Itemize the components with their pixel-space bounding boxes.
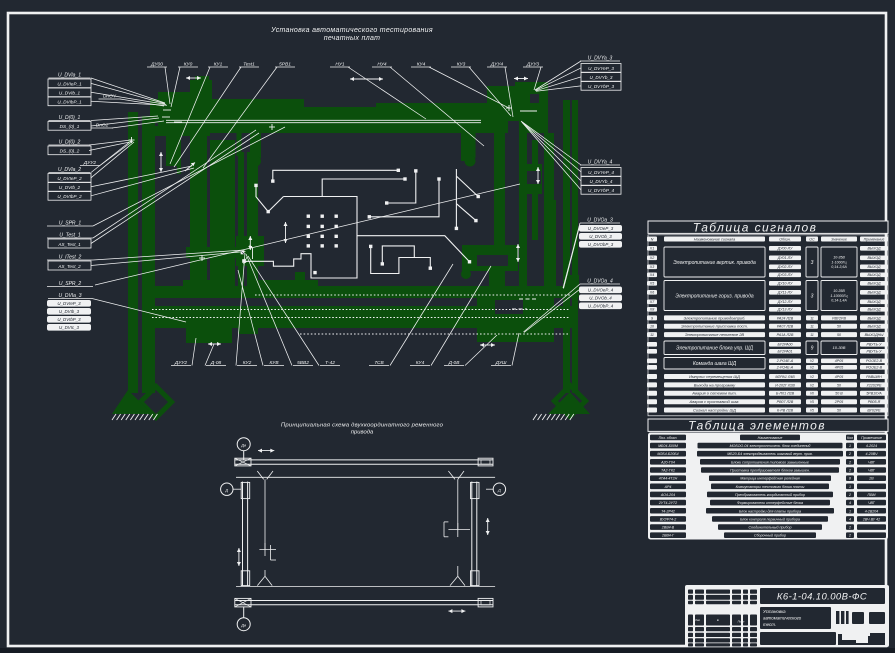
svg-text:РВУТЬ-У: РВУТЬ-У — [867, 343, 883, 347]
svg-text:50: 50 — [837, 333, 841, 337]
svg-text:РВУТЬ-У: РВУТЬ-У — [867, 350, 883, 354]
svg-text:ВЫХОД: ВЫХОД — [867, 308, 881, 312]
svg-text:Коммутаторы тестового блока пл: Коммутаторы тестового блока платы — [736, 485, 805, 489]
svg-text:11: 11 — [810, 325, 814, 329]
svg-text:N: N — [651, 237, 654, 241]
svg-text:1: 1 — [849, 485, 851, 489]
svg-text:Авария с приставкой шаг.: Авария с приставкой шаг. — [688, 399, 739, 404]
svg-text:МБ04-Б00М: МБ04-Б00М — [658, 444, 678, 448]
svg-text:Электропитание приставки пост.: Электропитание приставки пост. — [681, 324, 748, 329]
svg-text:V2: V2 — [810, 375, 814, 379]
svg-text:U_DVObP_4: U_DVObP_4 — [588, 304, 614, 309]
svg-text:DS_(0)_1: DS_(0)_1 — [60, 124, 80, 129]
svg-text:И-202Г Л2В: И-202Г Л2В — [775, 383, 795, 387]
svg-text:U_DVYeP_3: U_DVYeP_3 — [588, 66, 614, 71]
svg-text:ВЫХОД: ВЫХОД — [867, 325, 881, 329]
svg-text:2ВВ4-В: 2ВВ4-В — [661, 526, 675, 530]
svg-text:Таблица сигналов: Таблица сигналов — [693, 221, 818, 235]
svg-text:1: 1 — [849, 444, 851, 448]
svg-text:2: 2 — [848, 469, 851, 473]
svg-text:Преобразователь координатный п: Преобразователь координатный прибор — [735, 493, 805, 497]
svg-text:U_DVIb_1: U_DVIb_1 — [59, 91, 81, 96]
svg-text:Блоки сопротивления типового з: Блоки сопротивления типового завышенные — [731, 460, 809, 464]
svg-text:0,14-1,4А: 0,14-1,4А — [831, 299, 847, 303]
svg-text:U_DVIeP_2: U_DVIeP_2 — [57, 176, 82, 181]
svg-text:U_DVIeP_1: U_DVIeP_1 — [57, 82, 82, 87]
svg-text:1-1000Гц: 1-1000Гц — [831, 260, 846, 264]
svg-text:РА07 Л2В: РА07 Л2В — [777, 325, 794, 329]
svg-text:ДУ03-ЛУ: ДУ03-ЛУ — [777, 273, 793, 277]
svg-text:U_DVIb_2: U_DVIb_2 — [59, 185, 81, 190]
svg-text:▸: ▸ — [717, 618, 719, 622]
svg-text:Х6: Х6 — [649, 291, 654, 295]
svg-text:U_DVYb_4: U_DVYb_4 — [590, 179, 613, 184]
svg-text:9: 9 — [651, 316, 653, 320]
svg-text:Электропитание петлевое 2В: Электропитание петлевое 2В — [685, 332, 745, 337]
svg-text:Наименование сигнала: Наименование сигнала — [694, 237, 736, 241]
svg-text:ДУ12-ЛУ: ДУ12-ЛУ — [777, 300, 793, 304]
svg-text:11: 11 — [810, 333, 814, 337]
svg-text:Электропитание блока упр. ШД: Электропитание блока упр. ШД — [676, 346, 754, 352]
svg-text:Дв: Дв — [240, 442, 246, 447]
svg-text:печатных плат: печатных плат — [324, 35, 381, 42]
svg-text:ВЫХОДНЫ: ВЫХОДНЫ — [865, 333, 885, 337]
svg-text:Т4-2Р42: Т4-2Р42 — [661, 509, 675, 513]
svg-text:U_DVIbP_2: U_DVIbP_2 — [57, 194, 82, 199]
svg-text:Дв: Дв — [240, 622, 246, 627]
svg-text:ВЫХОД: ВЫХОД — [867, 316, 881, 320]
svg-text:ДУ00-ЛУ: ДУ00-ЛУ — [777, 247, 793, 251]
svg-text:2: 2 — [848, 534, 851, 538]
svg-text:ЧВТ: ЧВТ — [868, 501, 876, 505]
svg-text:М2РА1 Л4В: М2РА1 Л4В — [775, 375, 795, 379]
svg-text:50: 50 — [837, 408, 841, 412]
svg-text:РВ05-Я: РВ05-Я — [868, 400, 881, 404]
svg-text:Д: Д — [497, 487, 501, 492]
svg-text:2-РО4Е-А: 2-РО4Е-А — [776, 366, 794, 370]
svg-text:U_DVYb_3: U_DVYb_3 — [590, 75, 613, 80]
svg-text:U_DVObP_3: U_DVObP_3 — [588, 242, 614, 247]
svg-text:Х2: Х2 — [649, 256, 654, 260]
svg-text:U_DVIc_3: U_DVIc_3 — [59, 325, 80, 330]
svg-text:9: 9 — [811, 346, 814, 352]
svg-text:50: 50 — [837, 325, 841, 329]
svg-text:4-20ВЧ: 4-20ВЧ — [866, 452, 878, 456]
svg-text:U_DVYbP_3: U_DVYbP_3 — [588, 84, 614, 89]
svg-text:AS_Test_1: AS_Test_1 — [57, 242, 81, 247]
svg-text:Установка: Установка — [763, 609, 786, 614]
svg-text:Изм: Изм — [694, 618, 700, 622]
svg-text:автоматического: автоматического — [763, 616, 802, 621]
svg-text:V0: V0 — [810, 392, 814, 396]
svg-text:4: 4 — [849, 517, 851, 521]
svg-text:Х5: Х5 — [649, 282, 654, 286]
svg-text:Выхода на программу: Выхода на программу — [694, 382, 736, 387]
svg-text:Поз. обозн.: Поз. обозн. — [659, 436, 678, 440]
svg-text:Д: Д — [224, 487, 228, 492]
svg-text:Сигнал настройки ШД: Сигнал настройки ШД — [693, 407, 736, 412]
svg-text:МОБОО-04 электрооптическ. блок: МОБОО-04 электрооптическ. блок соединени… — [730, 444, 811, 448]
svg-text:У2202РЕ: У2202РЕ — [866, 383, 882, 387]
svg-text:Соединительный прибор: Соединительный прибор — [749, 526, 792, 530]
svg-text:ДУ11-ЛУ: ДУ11-ЛУ — [777, 291, 793, 295]
svg-text:Б-П01 Л2В: Б-П01 Л2В — [776, 392, 795, 396]
svg-text:ВЫХОД: ВЫХОД — [867, 300, 881, 304]
svg-text:Х3: Х3 — [649, 265, 654, 269]
svg-text:4Р05: 4Р05 — [835, 359, 843, 363]
svg-text:Примечание: Примечание — [864, 237, 885, 241]
svg-text:ВЫХОД: ВЫХОД — [867, 247, 881, 251]
svg-text:А20-Т04: А20-Т04 — [660, 460, 675, 464]
svg-text:Электропитание вертик. приво: Электропитание вертик. привода — [673, 260, 756, 266]
svg-text:Электропитание приводовприб.: Электропитание приводовприб. — [683, 315, 745, 320]
svg-text:4-2В204: 4-2В204 — [865, 509, 879, 513]
svg-text:АР4: АР4 — [664, 485, 672, 489]
svg-text:Приставка преобразователя блок: Приставка преобразователя блоков завышен… — [730, 469, 810, 473]
svg-text:БУ2РА00: БУ2РА00 — [778, 343, 793, 347]
svg-text:Х4: Х4 — [649, 273, 654, 277]
svg-text:U_DVOb_4: U_DVOb_4 — [589, 296, 612, 301]
svg-text:10: 10 — [650, 325, 654, 329]
svg-text:V5: V5 — [810, 408, 814, 412]
svg-text:ВЫХОД: ВЫХОД — [867, 282, 881, 286]
svg-text:2УТ4-2УТ2: 2УТ4-2УТ2 — [658, 501, 677, 505]
svg-text:К-РВ Л2В: К-РВ Л2В — [777, 408, 794, 412]
svg-text:U_DVOeP_3: U_DVOeP_3 — [588, 226, 614, 231]
svg-text:U_DVYbP_4: U_DVYbP_4 — [588, 188, 614, 193]
svg-text:V5: V5 — [810, 400, 814, 404]
svg-text:РА1А Л2В: РА1А Л2В — [777, 333, 794, 337]
svg-text:V2: V2 — [810, 383, 814, 387]
svg-text:10-35В: 10-35В — [833, 289, 845, 293]
svg-text:3: 3 — [811, 293, 814, 299]
svg-text:2ВВ4-Г: 2ВВ4-Г — [661, 534, 675, 538]
svg-text:8: 8 — [849, 477, 851, 481]
svg-text:3: 3 — [811, 260, 814, 266]
svg-text:Импульс перемещения ШД: Импульс перемещения ШД — [689, 374, 740, 379]
svg-text:1-10000Гц: 1-10000Гц — [830, 294, 847, 298]
svg-text:Таблица элементов: Таблица элементов — [688, 419, 826, 433]
svg-text:U_DVIeP_3: U_DVIeP_3 — [57, 301, 81, 306]
svg-text:10-35В: 10-35В — [833, 255, 845, 259]
svg-text:ВУ02РЕ: ВУ02РЕ — [867, 408, 881, 412]
svg-text:Блок контроля первичный прибор: Блок контроля первичный прибора — [740, 517, 800, 521]
svg-text:ОС: ОС — [809, 237, 815, 241]
svg-text:10-30В: 10-30В — [833, 345, 846, 350]
svg-text:2Р05: 2Р05 — [834, 400, 843, 404]
svg-text:V2: V2 — [810, 359, 814, 363]
svg-text:ЧВТ: ЧВТ — [868, 469, 876, 473]
svg-text:4Р05: 4Р05 — [835, 366, 843, 370]
svg-text:РООЕ2-В: РООЕ2-В — [866, 366, 883, 370]
svg-text:2-РО4Е-А: 2-РО4Е-А — [776, 359, 794, 363]
svg-text:ВЫХОД: ВЫХОД — [867, 256, 881, 260]
svg-text:Кол: Кол — [847, 436, 853, 440]
svg-text:2В: 2В — [868, 477, 874, 481]
svg-text:Принципиальная схема двухкоо: Принципиальная схема двухкоординатного р… — [281, 423, 444, 429]
svg-text:4-2024: 4-2024 — [866, 444, 877, 448]
svg-text:4Р05: 4Р05 — [835, 375, 843, 379]
svg-text:2: 2 — [848, 493, 851, 497]
svg-text:ПВМ: ПВМ — [868, 493, 876, 497]
svg-text:ВУ2ФТ4-2: ВУ2ФТ4-2 — [660, 517, 676, 521]
svg-text:50: 50 — [837, 383, 841, 387]
svg-text:РАВШИН: РАВШИН — [866, 375, 882, 379]
svg-text:привода: привода — [351, 430, 374, 436]
svg-text:РВ07 Л2В: РВ07 Л2В — [777, 400, 794, 404]
svg-text:Значение: Значение — [831, 237, 847, 241]
svg-text:50 В: 50 В — [835, 392, 843, 396]
svg-text:БУ2РА01: БУ2РА01 — [778, 350, 793, 354]
svg-text:тест.: тест. — [763, 622, 776, 627]
svg-text:ТА2-ТК2: ТА2-ТК2 — [661, 469, 675, 473]
svg-text:0,14-3,6А: 0,14-3,6А — [831, 265, 847, 269]
svg-text:Матрица интерфейсная релейная: Матрица интерфейсная релейная — [740, 477, 800, 481]
svg-text:Подп: Подп — [738, 620, 745, 624]
svg-text:АО4-204: АО4-204 — [660, 493, 675, 497]
svg-text:ВЫХОД: ВЫХОД — [867, 291, 881, 295]
svg-text:4: 4 — [849, 501, 851, 505]
svg-text:ДУ02-ЛУ: ДУ02-ЛУ — [777, 265, 793, 269]
svg-text:U_DVIbP_1: U_DVIbP_1 — [57, 100, 82, 105]
svg-text:U_DVYeP_4: U_DVYeP_4 — [588, 170, 614, 175]
svg-text:1: 1 — [849, 509, 851, 513]
svg-text:Установка автоматического тест: Установка автоматического тестирования — [270, 27, 433, 34]
svg-text:11: 11 — [810, 316, 814, 320]
svg-text:ДУ01-ЛУ: ДУ01-ЛУ — [777, 256, 793, 260]
svg-text:5РВ10УА: 5РВ10УА — [866, 392, 882, 396]
svg-text:11: 11 — [650, 333, 654, 337]
svg-text:ВЫХОД: ВЫХОД — [867, 265, 881, 269]
svg-text:U_DVOeP_4: U_DVOeP_4 — [588, 288, 614, 293]
svg-text:К6-1-04.10.00В-ФС: К6-1-04.10.00В-ФС — [777, 592, 867, 603]
svg-text:2: 2 — [848, 460, 851, 464]
svg-text:Блок настройки для платы прибо: Блок настройки для платы прибора — [739, 509, 801, 513]
svg-text:AS_Test_2: AS_Test_2 — [57, 264, 81, 269]
svg-text:РООЕ2-В: РООЕ2-В — [866, 359, 883, 363]
svg-text:РА24 Л2В: РА24 Л2В — [777, 316, 794, 320]
svg-text:Команда шага ШД: Команда шага ШД — [693, 361, 737, 367]
svg-text:МБ20-Б4 электродвигатель шагов: МБ20-Б4 электродвигатель шаговый верт. п… — [727, 452, 812, 456]
svg-text:Электропитание гориз. привод: Электропитание гориз. привода — [675, 293, 753, 299]
svg-text:2: 2 — [848, 452, 851, 456]
svg-text:РВУ2РВ: РВУ2РВ — [832, 316, 846, 320]
svg-text:Х8: Х8 — [649, 308, 654, 312]
svg-text:ВЫХОД: ВЫХОД — [867, 273, 881, 277]
svg-text:ЧВТ: ЧВТ — [868, 460, 876, 464]
svg-text:ДУ13-ЛУ: ДУ13-ЛУ — [777, 308, 793, 312]
svg-text:Обозн.: Обозн. — [779, 237, 790, 241]
svg-text:М2Б4-Б20Б4: М2Б4-Б20Б4 — [657, 452, 678, 456]
svg-text:V2: V2 — [810, 366, 814, 370]
svg-text:ДУ10-ЛУ: ДУ10-ЛУ — [777, 282, 793, 286]
svg-text:U_DVIbP_3: U_DVIbP_3 — [57, 317, 81, 322]
svg-text:Х1: Х1 — [649, 247, 654, 251]
svg-text:Авария о сетевом пит.: Авария о сетевом пит. — [691, 391, 737, 396]
svg-text:Примечание: Примечание — [861, 436, 882, 440]
svg-text:2: 2 — [848, 526, 851, 530]
svg-text:U_DVIb_3: U_DVIb_3 — [59, 309, 80, 314]
svg-text:2ВЧ ВУ 42: 2ВЧ ВУ 42 — [862, 517, 880, 521]
svg-text:U_DVOb_3: U_DVOb_3 — [589, 234, 612, 239]
svg-text:Сборочный прибор: Сборочный прибор — [754, 534, 786, 538]
svg-text:4ТА4-4Т2Н: 4ТА4-4Т2Н — [659, 477, 678, 481]
svg-text:Наименование: Наименование — [758, 436, 783, 440]
svg-text:DS_(0)_2: DS_(0)_2 — [60, 149, 80, 154]
svg-text:Формирователи интерфейсные бло: Формирователи интерфейсные блока — [737, 501, 803, 505]
